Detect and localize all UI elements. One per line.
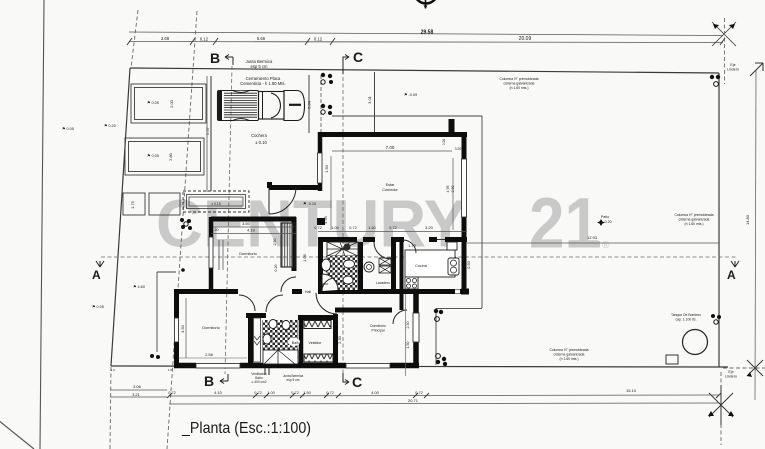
svg-text:20.09: 20.09 — [519, 36, 532, 42]
svg-text:3.50: 3.50 — [180, 324, 185, 333]
svg-text:⚑ 0.05: ⚑ 0.05 — [147, 154, 159, 158]
svg-text:1.60: 1.60 — [368, 226, 375, 230]
svg-text:0.12: 0.12 — [314, 37, 323, 42]
svg-text:15.10: 15.10 — [626, 388, 637, 393]
svg-text:⚑ -0.09: ⚑ -0.09 — [404, 93, 417, 97]
svg-text:⚑ 0.05: ⚑ 0.05 — [147, 101, 159, 105]
svg-text:0.72: 0.72 — [415, 391, 422, 395]
svg-text:14.80: 14.80 — [745, 214, 750, 225]
svg-text:Baño: Baño — [320, 282, 328, 286]
svg-text:3.68: 3.68 — [161, 36, 170, 41]
svg-text:Cementicia - h 1.80 Mts.: Cementicia - h 1.80 Mts. — [240, 81, 285, 86]
svg-text:4.10: 4.10 — [247, 228, 256, 233]
svg-text:1.20: 1.20 — [212, 228, 219, 232]
svg-text:1.50: 1.50 — [406, 342, 410, 349]
svg-text:cisterna galvanizada: cisterna galvanizada — [679, 218, 710, 222]
svg-text:⚑ 0.05: ⚑ 0.05 — [92, 305, 104, 309]
svg-text:0.26: 0.26 — [442, 139, 446, 146]
svg-text:⚑ 0.05: ⚑ 0.05 — [62, 127, 74, 131]
svg-text:Cochera: Cochera — [251, 133, 267, 138]
svg-text:± -0.20: ± -0.20 — [600, 220, 611, 224]
svg-text:1.75: 1.75 — [130, 200, 135, 209]
svg-text:Lindero: Lindero — [725, 375, 737, 379]
svg-text:0.26: 0.26 — [274, 265, 278, 272]
svg-text:cap. 1.100 lts.: cap. 1.100 lts. — [675, 318, 696, 322]
svg-text:0.72: 0.72 — [254, 391, 261, 395]
svg-text:Principal: Principal — [371, 329, 384, 333]
svg-text:⚑ -0.10: ⚑ -0.10 — [303, 202, 316, 206]
svg-text:4.00: 4.00 — [371, 390, 380, 395]
svg-text:cisterna galvanizada: cisterna galvanizada — [554, 353, 585, 357]
svg-text:0.72: 0.72 — [349, 226, 356, 230]
svg-text:Cocina: Cocina — [415, 264, 428, 268]
svg-text:esp 5 cm: esp 5 cm — [287, 378, 300, 382]
svg-text:± 0.15: ± 0.15 — [211, 202, 221, 206]
svg-text:1.C: 1.C — [111, 368, 117, 372]
svg-text:Dormitorio: Dormitorio — [202, 326, 220, 330]
svg-text:3.06: 3.06 — [133, 384, 142, 389]
svg-text:(h 1.60 mts.): (h 1.60 mts.) — [509, 86, 528, 90]
svg-text:0.72: 0.72 — [389, 226, 396, 230]
svg-text:_Planta (Esc.:1:100): _Planta (Esc.:1:100) — [181, 420, 311, 437]
svg-text:2.84: 2.84 — [307, 100, 312, 109]
svg-text:2.30: 2.30 — [337, 335, 342, 344]
svg-text:4.10: 4.10 — [214, 390, 223, 395]
svg-text:Hall: Hall — [305, 290, 311, 294]
svg-text:(h 1.60 mts.): (h 1.60 mts.) — [684, 222, 703, 226]
svg-text:(h 1.60 mts.): (h 1.60 mts.) — [559, 357, 578, 361]
svg-text:cisterna galvanizada: cisterna galvanizada — [504, 82, 535, 86]
svg-text:4.95: 4.95 — [446, 186, 450, 193]
svg-text:1.50: 1.50 — [303, 391, 310, 395]
svg-text:Estar: Estar — [386, 183, 396, 187]
svg-text:5.66: 5.66 — [257, 36, 266, 41]
svg-text:⚑ 0.20: ⚑ 0.20 — [104, 124, 116, 128]
svg-text:0.72: 0.72 — [314, 226, 321, 230]
svg-text:3.21: 3.21 — [132, 392, 141, 397]
svg-text:2.56: 2.56 — [205, 352, 214, 357]
svg-text:1.00: 1.00 — [267, 391, 274, 395]
svg-text:0.12: 0.12 — [200, 37, 209, 42]
svg-text:⚑ 4.60: ⚑ 4.60 — [133, 285, 145, 289]
svg-text:⌀ 400 cm2: ⌀ 400 cm2 — [251, 380, 266, 384]
svg-text:2.00: 2.00 — [169, 99, 174, 108]
svg-text:2.50: 2.50 — [273, 239, 277, 246]
svg-text:Tanque De Bombeo: Tanque De Bombeo — [671, 313, 701, 317]
svg-text:Columna H° premoldeada: Columna H° premoldeada — [674, 213, 713, 217]
svg-text:2.30: 2.30 — [406, 322, 410, 329]
svg-text:Columna H° premoldeada: Columna H° premoldeada — [499, 77, 538, 81]
svg-text:29.58: 29.58 — [421, 30, 434, 36]
svg-text:1.6: 1.6 — [168, 368, 173, 372]
svg-text:1.70: 1.70 — [408, 243, 417, 248]
svg-text:0.72: 0.72 — [291, 391, 298, 395]
svg-text:Eje: Eje — [730, 63, 735, 67]
svg-text:0.20: 0.20 — [455, 147, 462, 151]
svg-text:Eje: Eje — [728, 370, 733, 374]
svg-text:Baño: Baño — [292, 341, 300, 345]
svg-text:3.50: 3.50 — [242, 221, 251, 226]
svg-text:± 0.10: ± 0.10 — [255, 140, 267, 145]
svg-text:Lindero: Lindero — [727, 68, 739, 72]
svg-text:Patio: Patio — [601, 215, 609, 219]
svg-text:20.71: 20.71 — [408, 398, 419, 403]
svg-text:12.93: 12.93 — [587, 235, 598, 240]
svg-text:1.06: 1.06 — [302, 253, 307, 262]
svg-text:4.95: 4.95 — [323, 215, 328, 224]
svg-text:1.50: 1.50 — [324, 164, 329, 173]
svg-text:1.00: 1.00 — [331, 226, 338, 230]
svg-text:esp 5 cm: esp 5 cm — [251, 64, 269, 69]
svg-text:5.57: 5.57 — [205, 126, 210, 135]
svg-text:Vestidor: Vestidor — [309, 341, 323, 345]
svg-text:3.20: 3.20 — [425, 225, 434, 230]
svg-text:Dormitorio: Dormitorio — [370, 324, 386, 328]
svg-text:3.01: 3.01 — [367, 95, 372, 104]
svg-text:Lavadero: Lavadero — [376, 281, 390, 285]
svg-text:7.00: 7.00 — [386, 145, 395, 150]
svg-text:Columna H° premoldeada: Columna H° premoldeada — [549, 348, 588, 352]
svg-text:Dormitorio: Dormitorio — [239, 252, 257, 256]
svg-text:2.80: 2.80 — [168, 152, 173, 161]
svg-text:0.72: 0.72 — [168, 391, 175, 395]
svg-text:0.50: 0.50 — [466, 260, 471, 269]
svg-text:Comedor: Comedor — [382, 188, 398, 192]
svg-text:3.90: 3.90 — [451, 186, 455, 193]
svg-text:0.72: 0.72 — [326, 391, 333, 395]
